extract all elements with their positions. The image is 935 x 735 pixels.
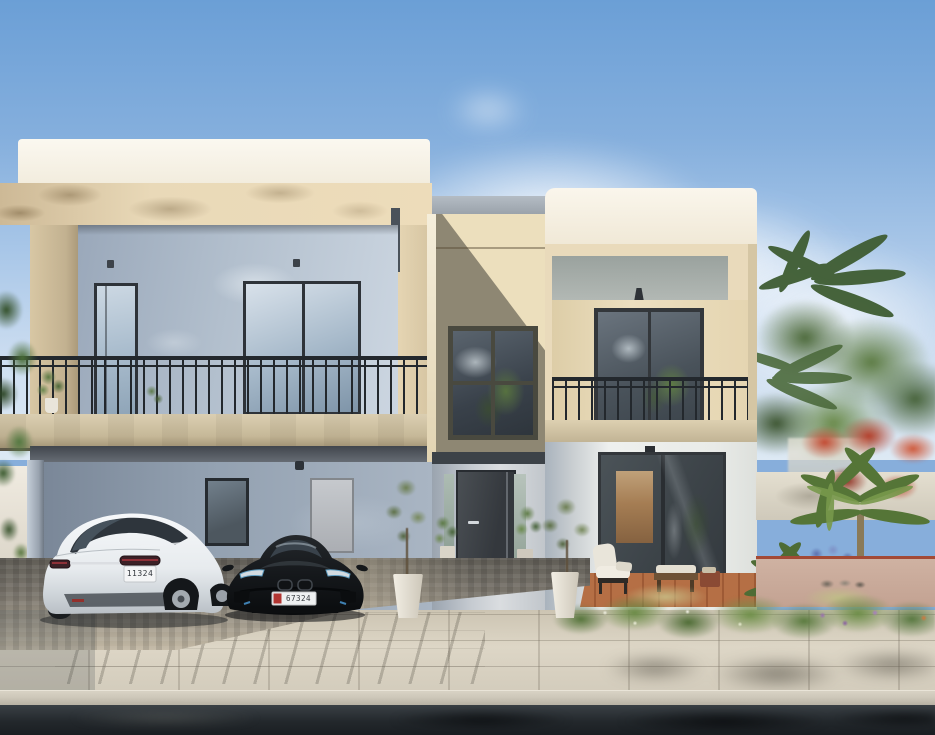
black-sports-car (220, 514, 370, 624)
license-plate-white-sedan: 11324 (125, 567, 155, 579)
overhanging-tree (0, 262, 48, 502)
villa-exterior-render: 11324 67324 (0, 0, 935, 735)
wall-lamp (645, 446, 655, 452)
potted-tree (382, 468, 430, 578)
left-block-parapet (18, 139, 430, 185)
tree-shadow-on-road (330, 705, 935, 735)
tower-corner-highlight (427, 214, 436, 462)
door-handle (468, 521, 479, 524)
right-block-parapet (545, 188, 757, 246)
left-block-fascia (0, 183, 432, 225)
road-light-patch (30, 707, 300, 729)
tower-grid-window (448, 326, 538, 440)
wall-vent (293, 259, 300, 267)
front-door (456, 470, 516, 566)
tree-shadow-on-sidewalk (585, 640, 935, 696)
cloud (448, 88, 528, 132)
wall-vent (107, 260, 114, 268)
balcony-potted-plant (140, 378, 166, 416)
hedge-flowers (560, 592, 935, 644)
carport-soffit-shadow (30, 446, 432, 462)
tower-seam-line (432, 247, 545, 249)
license-plate-sports-car: 67324 (282, 593, 315, 604)
wall-lamp (295, 461, 304, 470)
potted-olive-tree (534, 492, 598, 576)
